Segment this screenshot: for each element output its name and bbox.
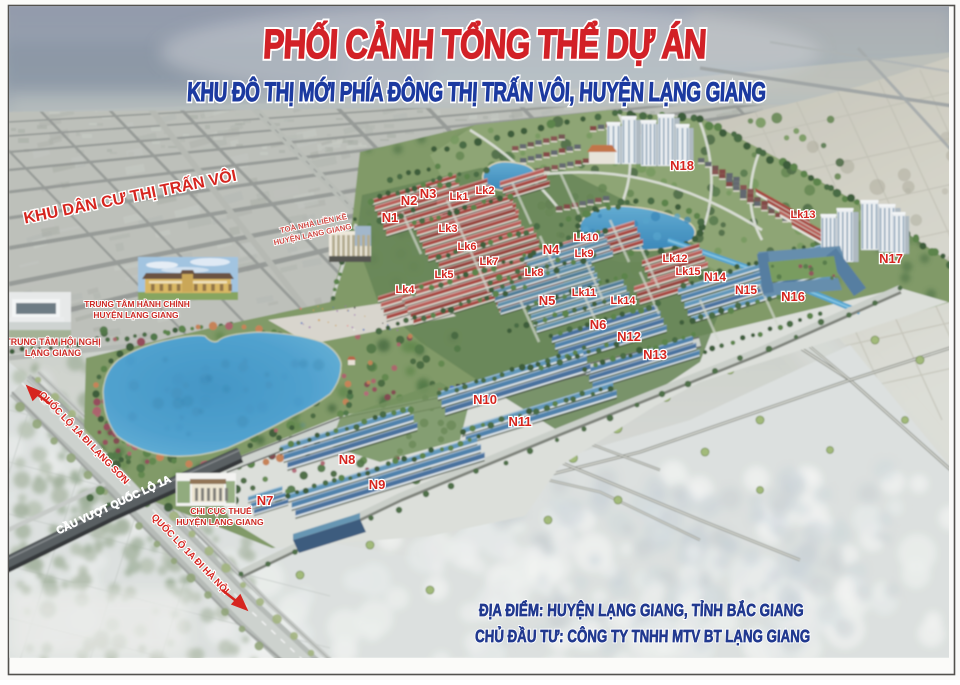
svg-text:Lk15: Lk15	[675, 266, 700, 278]
svg-text:Lk10: Lk10	[573, 232, 598, 244]
svg-text:PHỐI CẢNH TỔNG THỂ DỰ ÁN: PHỐI CẢNH TỔNG THỂ DỰ ÁN	[262, 19, 707, 67]
svg-text:N17: N17	[879, 251, 903, 266]
svg-text:Lk1: Lk1	[450, 191, 469, 203]
svg-text:TRUNG TÂM HÀNH CHÍNH: TRUNG TÂM HÀNH CHÍNH	[84, 298, 190, 309]
svg-text:Lk2: Lk2	[476, 185, 495, 197]
svg-text:LẠNG GIANG: LẠNG GIANG	[25, 348, 81, 358]
svg-text:N2: N2	[401, 193, 418, 208]
svg-text:HUYỆN LẠNG GIANG: HUYỆN LẠNG GIANG	[93, 309, 178, 320]
svg-text:Lk3: Lk3	[439, 223, 458, 235]
svg-text:KHU ĐÔ THỊ MỚI PHÍA ĐÔNG THỊ T: KHU ĐÔ THỊ MỚI PHÍA ĐÔNG THỊ TRẤN VÔI, H…	[186, 76, 766, 107]
svg-text:Lk12: Lk12	[662, 253, 687, 265]
svg-text:N13: N13	[643, 347, 667, 362]
svg-text:Lk4: Lk4	[396, 284, 416, 296]
svg-text:Lk11: Lk11	[572, 287, 596, 299]
svg-text:N14: N14	[704, 270, 726, 284]
svg-text:Lk6: Lk6	[458, 241, 477, 253]
svg-text:N18: N18	[670, 158, 694, 173]
svg-text:TRUNG TÂM HỘI NGHỊ: TRUNG TÂM HỘI NGHỊ	[5, 336, 100, 347]
svg-text:N10: N10	[473, 392, 497, 407]
svg-text:Lk13: Lk13	[790, 209, 815, 221]
svg-text:ĐỊA ĐIỂM: HUYỆN LẠNG GIANG, TỈ: ĐỊA ĐIỂM: HUYỆN LẠNG GIANG, TỈNH BẮC GIA…	[479, 599, 805, 620]
svg-text:Lk8: Lk8	[525, 267, 544, 279]
svg-text:N4: N4	[543, 242, 560, 257]
svg-text:HUYỆN LẠNG GIANG: HUYỆN LẠNG GIANG	[176, 516, 264, 527]
svg-text:N7: N7	[257, 493, 274, 508]
svg-text:CHI CỤC THUẾ: CHI CỤC THUẾ	[190, 506, 252, 516]
svg-text:N1: N1	[382, 210, 399, 225]
svg-text:N8: N8	[339, 452, 356, 467]
svg-text:N6: N6	[590, 317, 607, 332]
svg-text:Lk14: Lk14	[610, 295, 636, 307]
svg-text:N5: N5	[539, 293, 556, 308]
svg-text:Lk9: Lk9	[575, 248, 594, 260]
svg-text:N16: N16	[781, 289, 805, 304]
svg-text:N9: N9	[369, 477, 386, 492]
svg-text:N12: N12	[617, 329, 641, 344]
svg-text:N11: N11	[508, 414, 531, 429]
svg-text:Lk5: Lk5	[435, 269, 454, 281]
svg-text:N15: N15	[735, 283, 757, 297]
svg-text:Lk7: Lk7	[480, 256, 499, 268]
svg-text:N3: N3	[420, 186, 437, 201]
svg-text:CHỦ ĐẦU TƯ: CÔNG TY TNHH MTV B: CHỦ ĐẦU TƯ: CÔNG TY TNHH MTV BT LẠNG GIA…	[475, 626, 811, 646]
